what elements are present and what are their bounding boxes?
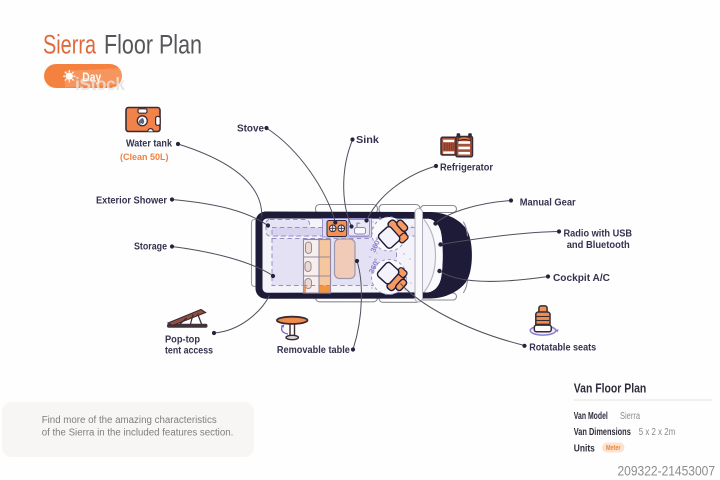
- svg-text:Find more of the amazing chara: Find more of the amazing characteristics: [42, 415, 217, 426]
- svg-text:Units: Units: [574, 443, 595, 454]
- svg-text:Radio with USB: Radio with USB: [564, 228, 633, 240]
- svg-text:Storage: Storage: [134, 241, 167, 253]
- svg-text:Removable table: Removable table: [277, 344, 350, 356]
- svg-text:Sierra: Sierra: [620, 411, 640, 422]
- svg-text:Floor Plan: Floor Plan: [104, 30, 202, 60]
- svg-text:tent access: tent access: [165, 345, 213, 357]
- svg-text:5 x 2 x 2m: 5 x 2 x 2m: [639, 427, 676, 438]
- svg-text:Rotatable seats: Rotatable seats: [529, 342, 596, 354]
- svg-text:Water tank: Water tank: [126, 138, 172, 150]
- svg-text:Refrigerator: Refrigerator: [440, 162, 493, 174]
- svg-text:and Bluetooth: and Bluetooth: [567, 239, 630, 251]
- svg-text:Stove: Stove: [237, 123, 264, 135]
- svg-text:(Clean 50L): (Clean 50L): [120, 152, 169, 163]
- svg-text:Sink: Sink: [356, 134, 379, 146]
- svg-text:Van Floor Plan: Van Floor Plan: [574, 382, 647, 396]
- svg-text:209322-21453007: 209322-21453007: [618, 463, 716, 479]
- svg-text:of the Sierra in the included: of the Sierra in the included features s…: [42, 428, 234, 439]
- svg-text:Sierra: Sierra: [43, 30, 96, 60]
- svg-text:Meter: Meter: [606, 445, 621, 452]
- svg-text:Van Dimensions: Van Dimensions: [574, 427, 631, 438]
- svg-text:Cockpit A/C: Cockpit A/C: [553, 272, 610, 284]
- svg-text:Exterior Shower: Exterior Shower: [96, 195, 167, 207]
- svg-text:Van Model: Van Model: [574, 411, 608, 422]
- svg-text:Manual Gear: Manual Gear: [520, 197, 576, 209]
